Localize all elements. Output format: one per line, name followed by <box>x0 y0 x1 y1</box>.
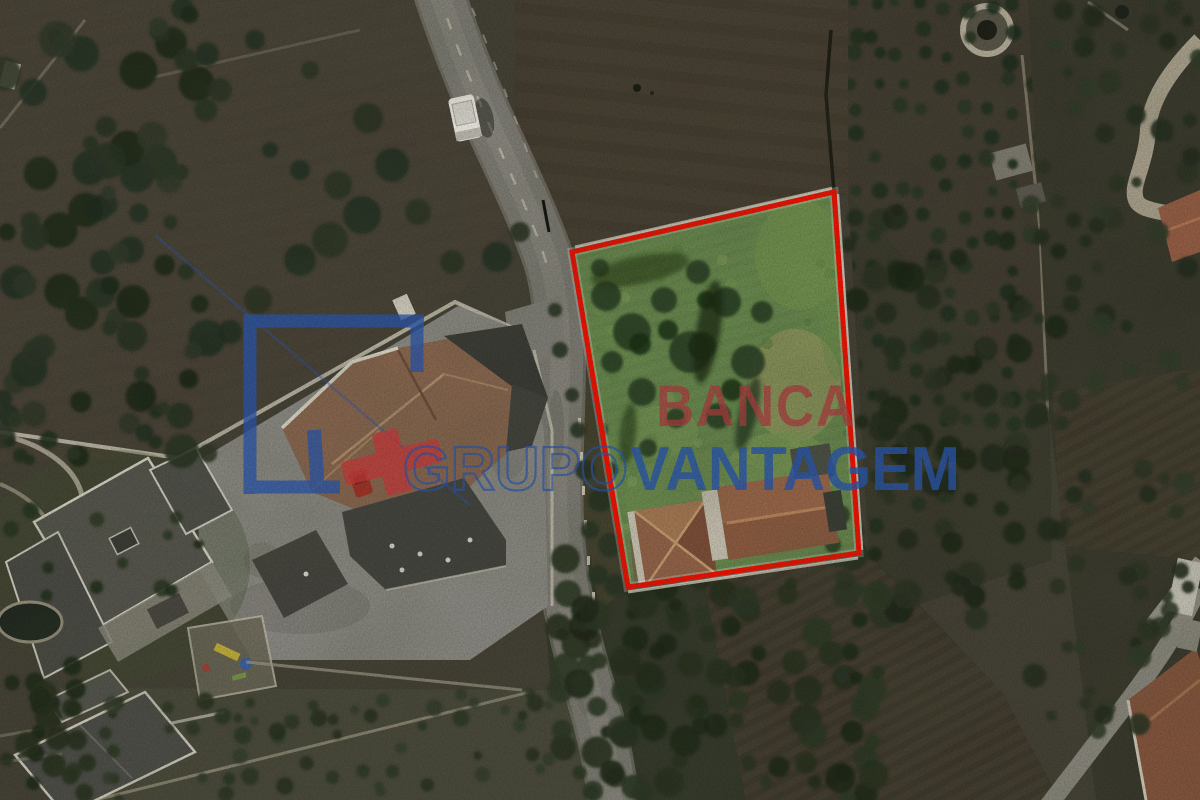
film-grain-overlay <box>0 0 1200 800</box>
screenshot-root: BANCA GRUPO VANTAGEM <box>0 0 1200 800</box>
satellite-image: BANCA GRUPO VANTAGEM <box>0 0 1200 800</box>
